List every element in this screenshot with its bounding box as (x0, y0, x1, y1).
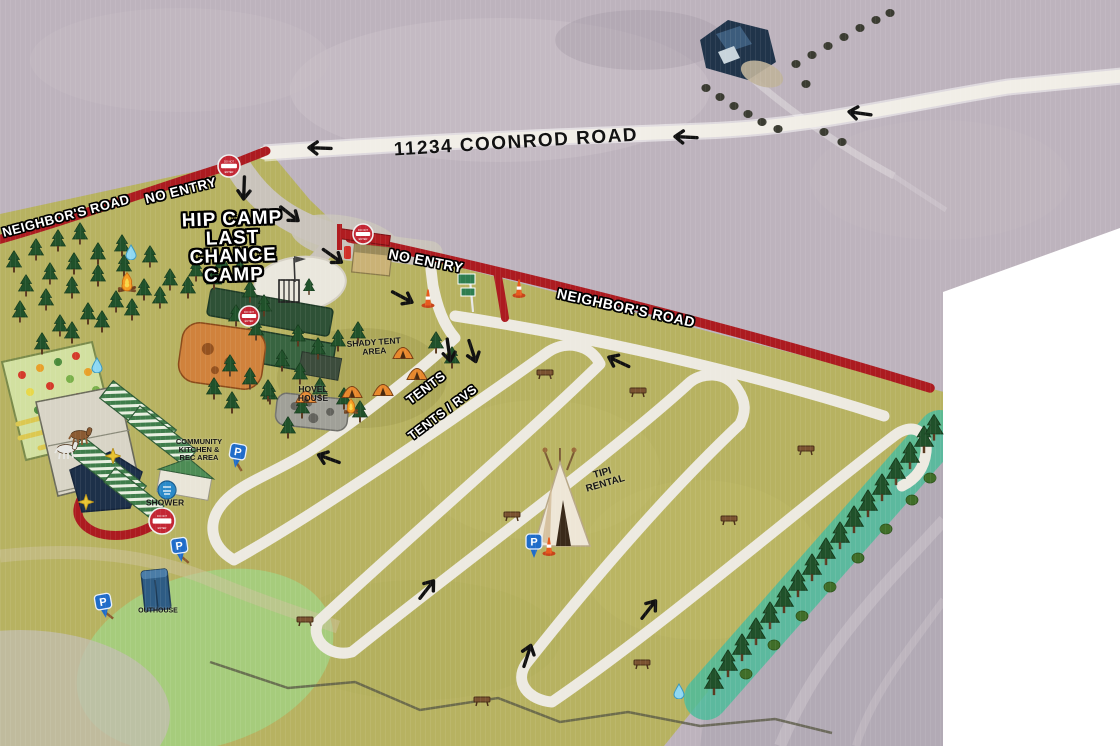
hovel-house-building (275, 392, 350, 431)
shower-icon (158, 481, 176, 499)
map-base-art (0, 0, 1120, 746)
campground-map: PPPPDO NOTENTERDO NOTENTERDO NOTENTERDO … (0, 0, 1120, 746)
page-margin (943, 228, 1120, 746)
hydrant-icon (344, 246, 351, 259)
gate-hut (352, 244, 393, 276)
outhouse-building (141, 569, 171, 611)
